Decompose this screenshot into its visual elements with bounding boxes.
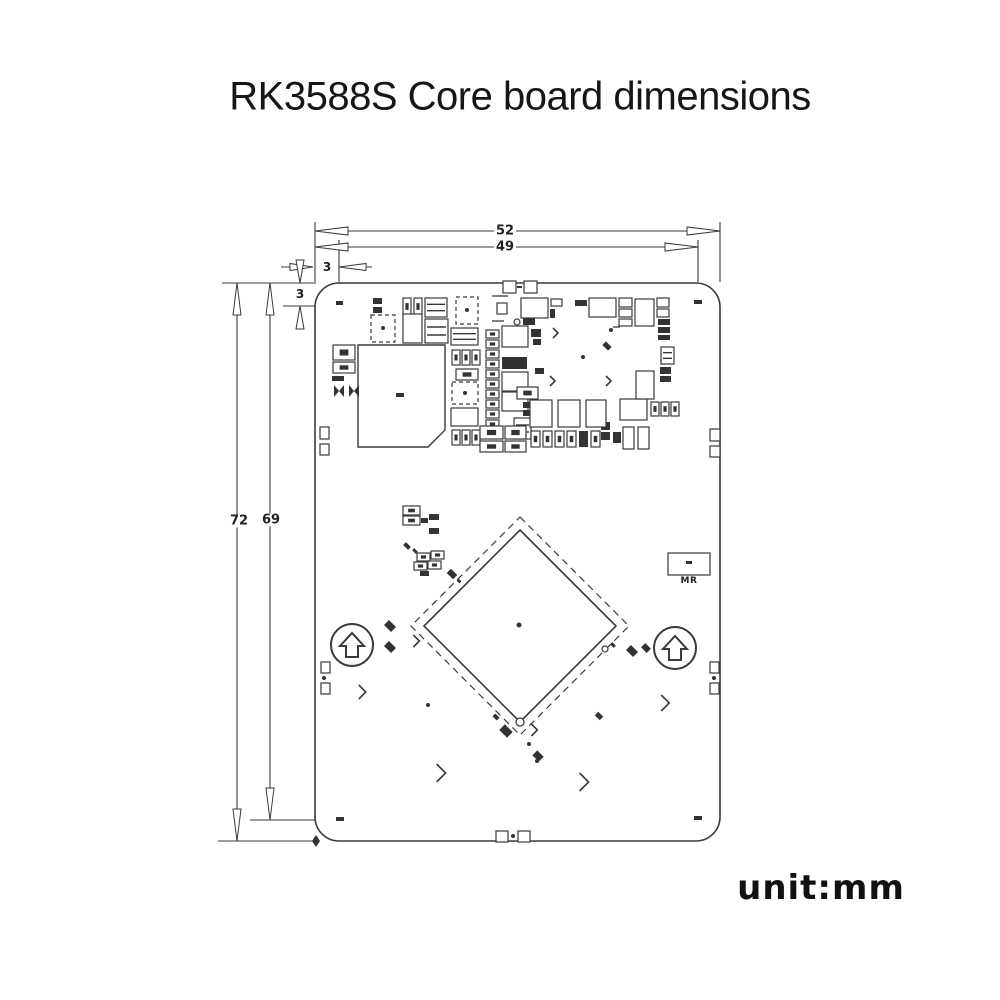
board-dimension-diagram (0, 0, 1000, 1000)
page: RK3588S Core board dimensions (0, 0, 1000, 1000)
dim-edge-offset-h: 3 (321, 261, 333, 273)
dim-edge-offset-v: 3 (294, 288, 306, 300)
corner-datum-mark (312, 835, 320, 847)
dim-height-total: 72 (228, 515, 250, 528)
dim-width-total: 52 (494, 225, 516, 238)
dim-height-inner: 69 (260, 514, 282, 527)
mr-component-label: MR (681, 576, 698, 586)
unit-label: unit:mm (737, 868, 905, 908)
dim-width-inner: 49 (494, 241, 516, 254)
